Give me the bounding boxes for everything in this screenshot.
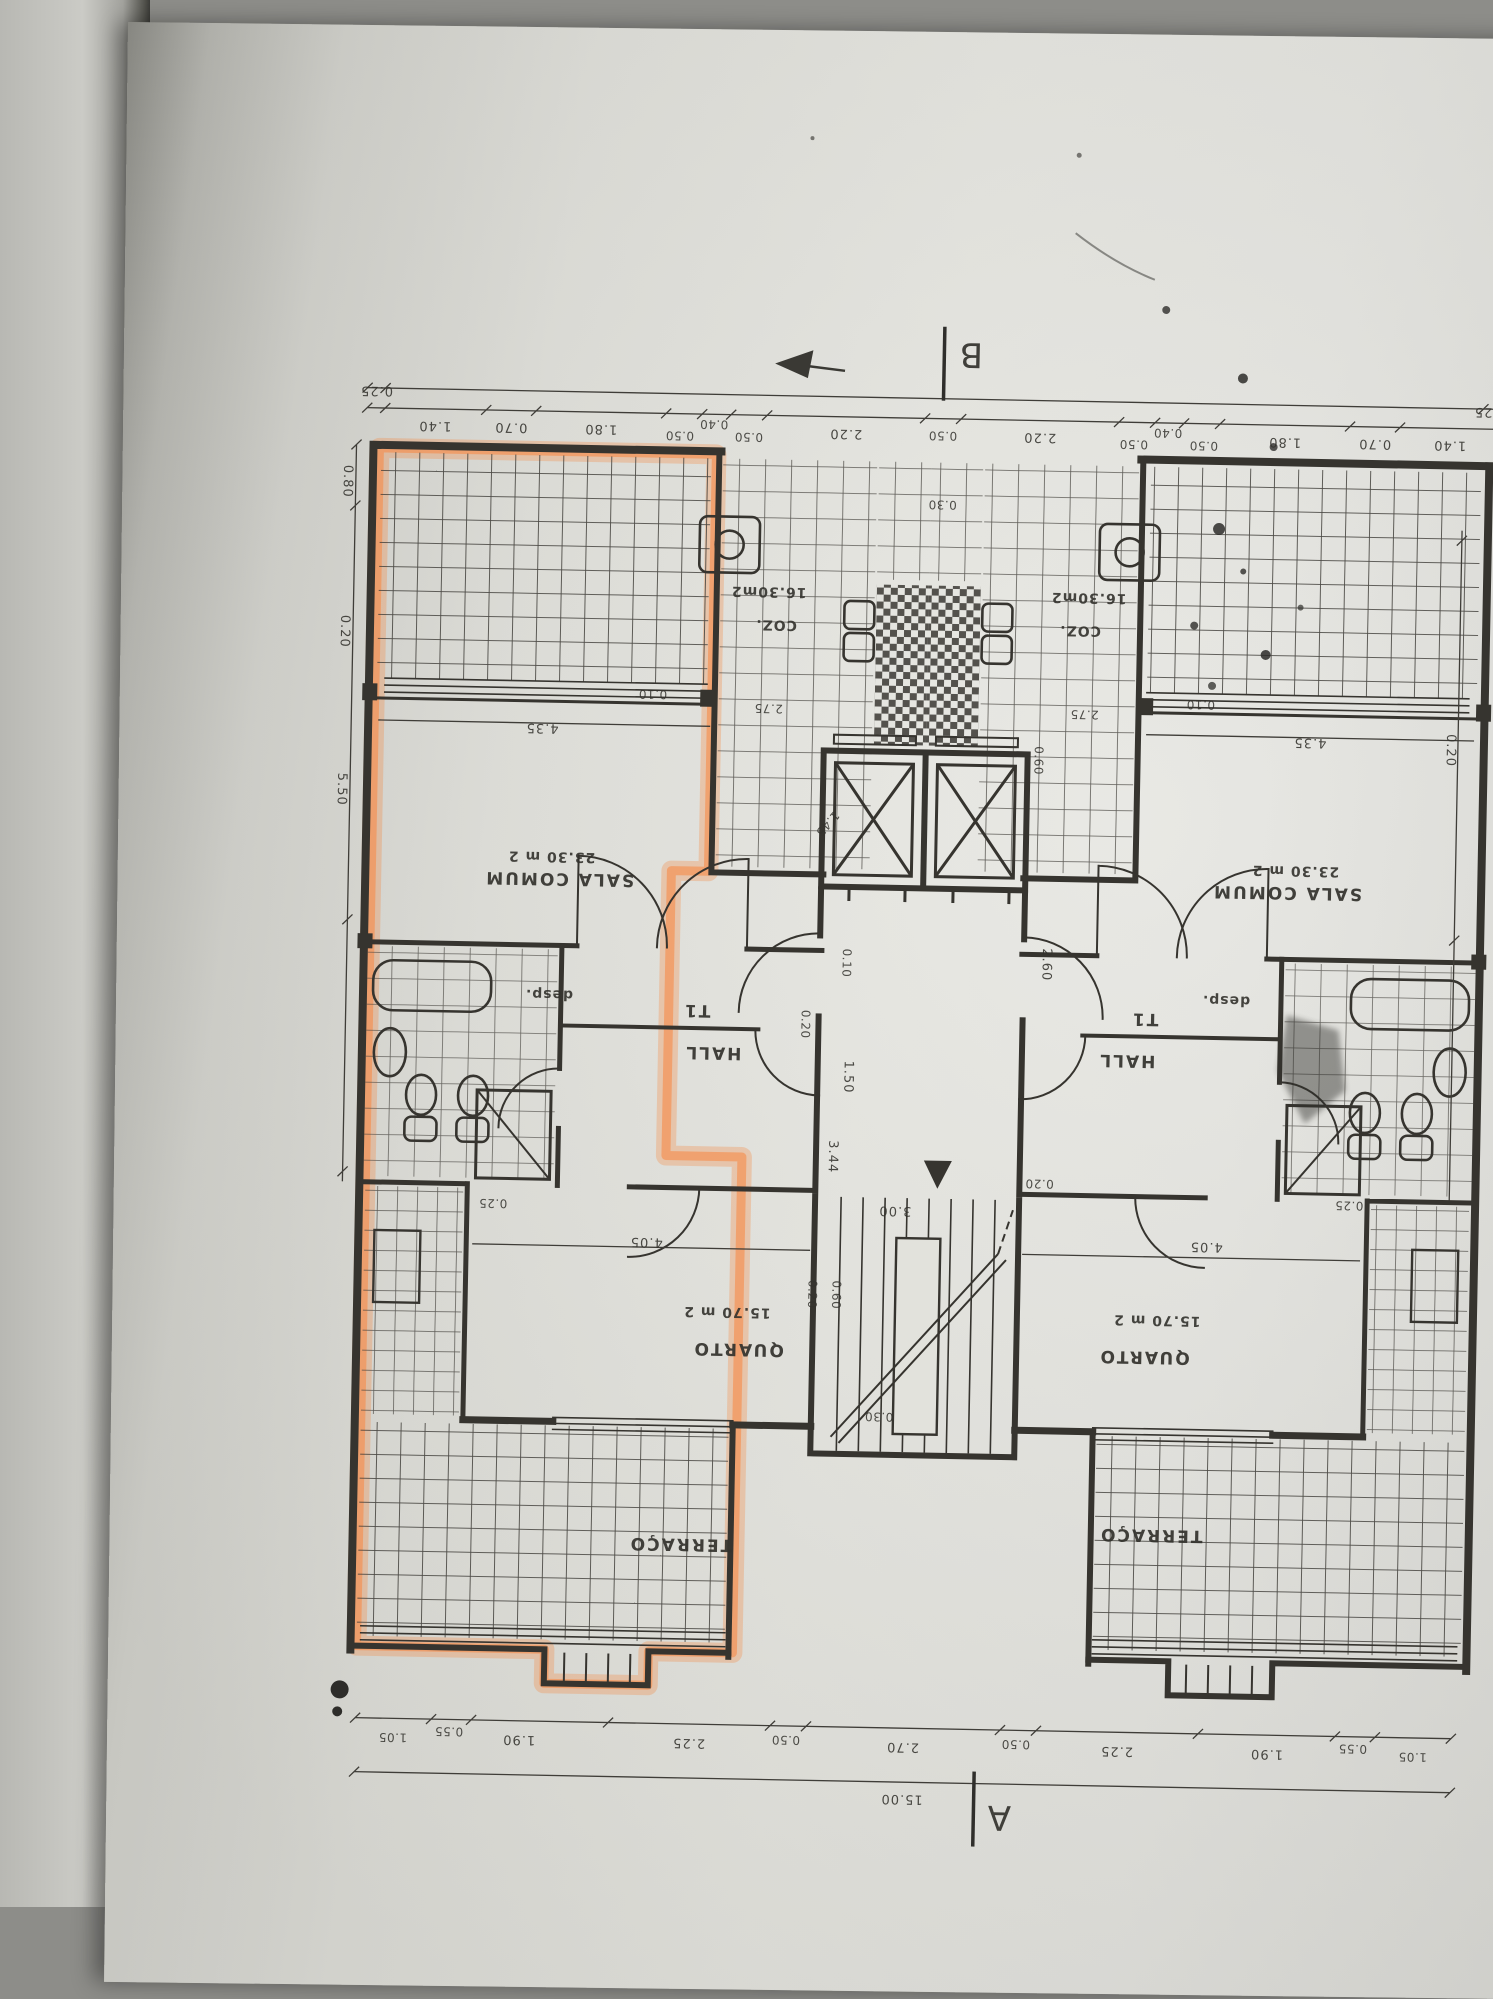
dim-vent: 0.60 (1031, 746, 1046, 775)
dim-quarto-wall-left: 0.25 (478, 1196, 507, 1211)
dim-sala-width-left: 4.35 (526, 720, 559, 736)
dim-stair-run: 3.44 (825, 1140, 841, 1173)
dim-top-4: 0.40 (699, 417, 728, 432)
dim-top-12: 1.80 (1268, 434, 1301, 450)
dim-parapet: 0.30 (928, 497, 957, 512)
dim-bot-4: 0.50 (771, 1733, 800, 1748)
dim-bot-7: 2.25 (1100, 1743, 1133, 1759)
room-area-quarto-left: 15.70 m 2 (683, 1303, 771, 1321)
dim-top-5: 0.50 (734, 430, 763, 445)
floor-plan-drawing: B A SALA COMUM 23.30 m 2 SALA COMUM 23.3… (0, 0, 1493, 1907)
room-label-hall-right: HALL (1098, 1050, 1155, 1071)
room-label-sala-left: SALA COMUM (484, 867, 634, 890)
dim-top-10: 0.40 (1153, 426, 1182, 441)
room-label-desp-left: desp. (525, 986, 574, 1003)
dim-top-right-end: 0.25 (1474, 404, 1493, 420)
dim-top-14: 1.40 (1433, 437, 1466, 453)
room-label-hall-left: HALL (684, 1042, 741, 1063)
dim-q3: 0.30 (864, 1409, 893, 1424)
room-label-sala-right: SALA COMUM (1212, 881, 1362, 904)
dim-shaft-gap: 0.10 (839, 948, 854, 977)
floor-plan: B A SALA COMUM 23.30 m 2 SALA COMUM 23.3… (314, 127, 1493, 1856)
dim-top-left-end: 0.25 (360, 383, 393, 399)
room-label-terraco-right: TERRAÇO (1099, 1524, 1203, 1546)
stairs (830, 1159, 1014, 1454)
dim-bot-5: 2.70 (886, 1739, 919, 1755)
dim-top-3: 0.50 (665, 428, 694, 443)
dim-top-2: 1.80 (584, 421, 617, 437)
dim-stair-width: 3.00 (878, 1203, 911, 1219)
dim-q1: 0.20 (805, 1280, 820, 1309)
dim-sala-gap-right: 0.10 (1186, 697, 1215, 712)
dim-top-8: 2.20 (1023, 429, 1056, 445)
dim-bot-6: 0.50 (1001, 1737, 1030, 1752)
dim-top-13: 0.70 (1358, 436, 1391, 452)
dim-sala-gap-left: 0.10 (638, 687, 667, 702)
dim-top-6: 2.20 (829, 426, 862, 442)
room-label-desp-right: desp. (1202, 992, 1251, 1009)
room-area-sala-left: 23.30 m 2 (508, 847, 596, 865)
unit-label-t1-left: T1 (683, 1000, 711, 1021)
stair-direction-arrow (923, 1160, 952, 1189)
section-marker-b: B (959, 334, 983, 374)
dim-bot-10: 1.05 (1398, 1750, 1427, 1765)
dim-entry: 2.60 (1038, 948, 1054, 981)
dim-coz-width-left: 2.75 (754, 701, 783, 716)
room-area-sala-right: 23.30 m 2 (1252, 862, 1340, 880)
dim-corridor: 1.50 (840, 1060, 856, 1093)
room-label-coz-right: COZ. (1059, 622, 1101, 639)
room-area-quarto-right: 15.70 m 2 (1113, 1311, 1201, 1329)
dim-sala-width-right: 4.35 (1293, 734, 1326, 750)
dim-q2: 0.60 (829, 1280, 844, 1309)
dim-left-0: 0.80 (340, 465, 356, 498)
dim-coz-width-right: 2.75 (1070, 707, 1099, 722)
dim-bot-1: 0.55 (434, 1724, 463, 1739)
section-marker-a: A (987, 1797, 1011, 1837)
dim-quarto-width-left: 4.05 (630, 1234, 663, 1250)
dim-top-9: 0.50 (1119, 437, 1148, 452)
photo-of-floor-plan: { "document": { "type": "architectural f… (0, 0, 1493, 1907)
dim-bot-9: 0.55 (1338, 1742, 1367, 1757)
dim-left-1: 0.20 (337, 615, 353, 648)
dim-bot-0: 1.05 (378, 1730, 407, 1745)
room-label-quarto-right: QUARTO (1098, 1346, 1190, 1368)
dim-right-wall: 0.20 (1443, 734, 1459, 767)
dim-quarto-wall-right: 0.25 (1335, 1198, 1364, 1213)
dim-hall-wall: 0.20 (798, 1010, 813, 1039)
room-area-coz-left: 16.30m2 (731, 583, 807, 600)
north-arrow-icon (775, 349, 814, 378)
dim-top-7: 0.50 (928, 428, 957, 443)
room-label-terraco-left: TERRAÇO (629, 1533, 733, 1555)
room-area-coz-right: 16.30m2 (1051, 589, 1127, 606)
room-label-coz-left: COZ. (755, 616, 797, 633)
dim-bot-2: 1.90 (502, 1731, 535, 1747)
room-label-quarto-left: QUARTO (692, 1338, 784, 1360)
dim-top-1: 0.70 (494, 419, 527, 435)
dim-bot-3: 2.25 (672, 1735, 705, 1751)
dim-bottom-total: 15.00 (880, 1791, 922, 1807)
dim-top-0: 1.40 (418, 418, 451, 434)
dim-stair-wall: 0.20 (1025, 1176, 1054, 1191)
unit-label-t1-right: T1 (1131, 1008, 1159, 1029)
dim-bot-8: 1.90 (1250, 1746, 1283, 1762)
dim-left-2: 5.50 (334, 773, 350, 806)
dim-top-11: 0.50 (1189, 438, 1218, 453)
dim-quarto-width-right: 4.05 (1190, 1239, 1223, 1255)
